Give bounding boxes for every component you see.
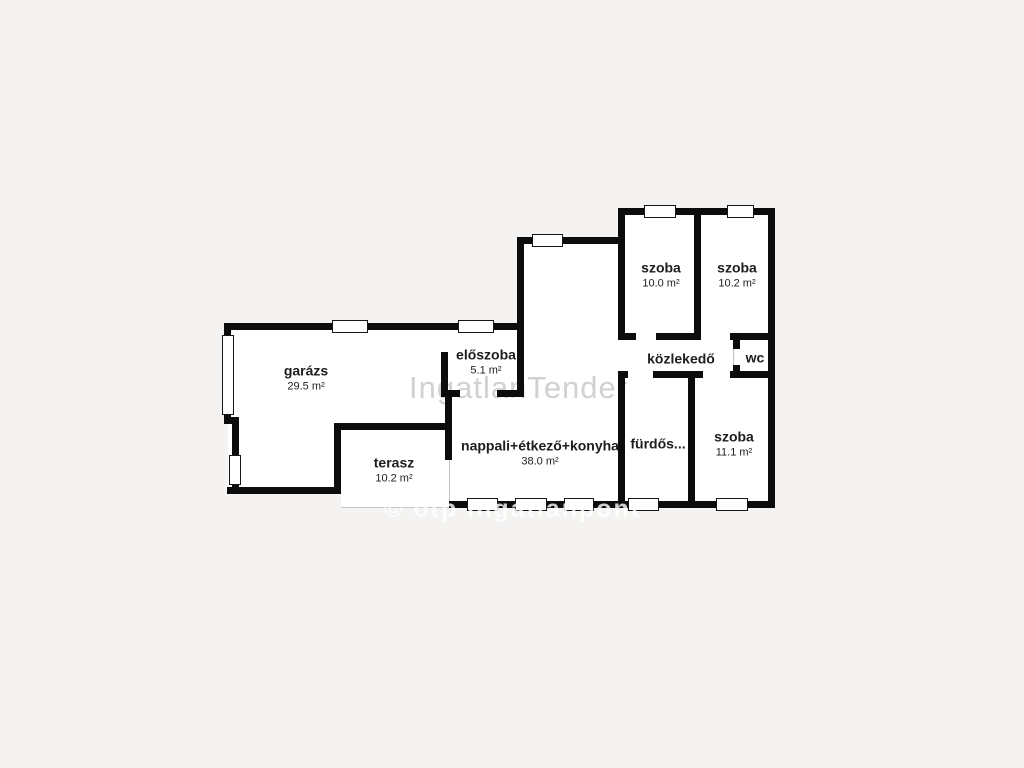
room-label-nappali: nappali+étkező+konyha 38.0 m²: [461, 438, 619, 469]
wall-nappali-west: [517, 237, 524, 397]
room-label-eloszoba: előszoba 5.1 m²: [456, 347, 516, 378]
room-floor-garazs-lower: [228, 420, 338, 490]
room-name-wc: wc: [746, 350, 765, 367]
wall-nappali-east-upper: [618, 208, 625, 335]
room-name-szoba-3: szoba: [714, 429, 754, 446]
room-label-wc: wc: [746, 350, 765, 367]
room-label-szoba-2: szoba 10.2 m²: [717, 260, 757, 291]
room-area-szoba-1: 10.0 m²: [641, 277, 681, 291]
room-name-furdoszoba: fürdős...: [630, 436, 685, 453]
room-label-terasz: terasz 10.2 m²: [374, 455, 414, 486]
room-name-szoba-1: szoba: [641, 260, 681, 277]
room-label-garazs: garázs 29.5 m²: [284, 363, 328, 394]
room-name-szoba-2: szoba: [717, 260, 757, 277]
room-area-nappali: 38.0 m²: [461, 455, 619, 469]
floorplan-image: IngatlanTender garázs 29.5 m² előszoba: [0, 0, 1024, 768]
window-szoba-2-top: [727, 205, 754, 218]
window-szoba-1-top: [644, 205, 676, 218]
wall-kozlekedo-bottom-b: [653, 371, 703, 378]
room-label-szoba-1: szoba 10.0 m²: [641, 260, 681, 291]
wall-terasz-left: [334, 423, 341, 492]
wall-furdo-szoba-divider: [688, 371, 695, 508]
window-garage-left: [222, 335, 234, 415]
room-area-eloszoba: 5.1 m²: [456, 364, 516, 378]
room-label-kozlekedo: közlekedő: [647, 351, 715, 368]
watermark-bottom: © otp ingatlanpont: [384, 496, 641, 523]
wall-wc-nub-top: [733, 333, 740, 349]
room-area-terasz: 10.2 m²: [374, 472, 414, 486]
window-nappali-top: [532, 234, 563, 247]
wall-wc-nub-bottom: [733, 365, 740, 378]
wall-nappali-east-lower: [618, 376, 625, 508]
wall-right-outer: [768, 208, 775, 508]
room-area-szoba-3: 11.1 m²: [714, 446, 754, 460]
room-area-szoba-2: 10.2 m²: [717, 277, 757, 291]
wc-door-line: [733, 349, 734, 365]
room-name-garazs: garázs: [284, 363, 328, 380]
window-garage-left-low: [229, 455, 241, 485]
room-name-nappali: nappali+étkező+konyha: [461, 438, 619, 455]
room-name-terasz: terasz: [374, 455, 414, 472]
wall-garage-bottom: [227, 487, 341, 494]
room-label-szoba-3: szoba 11.1 m²: [714, 429, 754, 460]
wall-szoba-divider-top: [694, 208, 701, 340]
window-szoba-3-bottom: [716, 498, 748, 511]
window-garage-top: [332, 320, 368, 333]
room-label-furdoszoba: fürdős...: [630, 436, 685, 453]
wall-nappali-terasz: [445, 390, 452, 460]
room-name-eloszoba: előszoba: [456, 347, 516, 364]
room-area-garazs: 29.5 m²: [284, 380, 328, 394]
wall-terasz-top: [334, 423, 452, 430]
room-name-kozlekedo: közlekedő: [647, 351, 715, 368]
window-eloszoba-top: [458, 320, 494, 333]
